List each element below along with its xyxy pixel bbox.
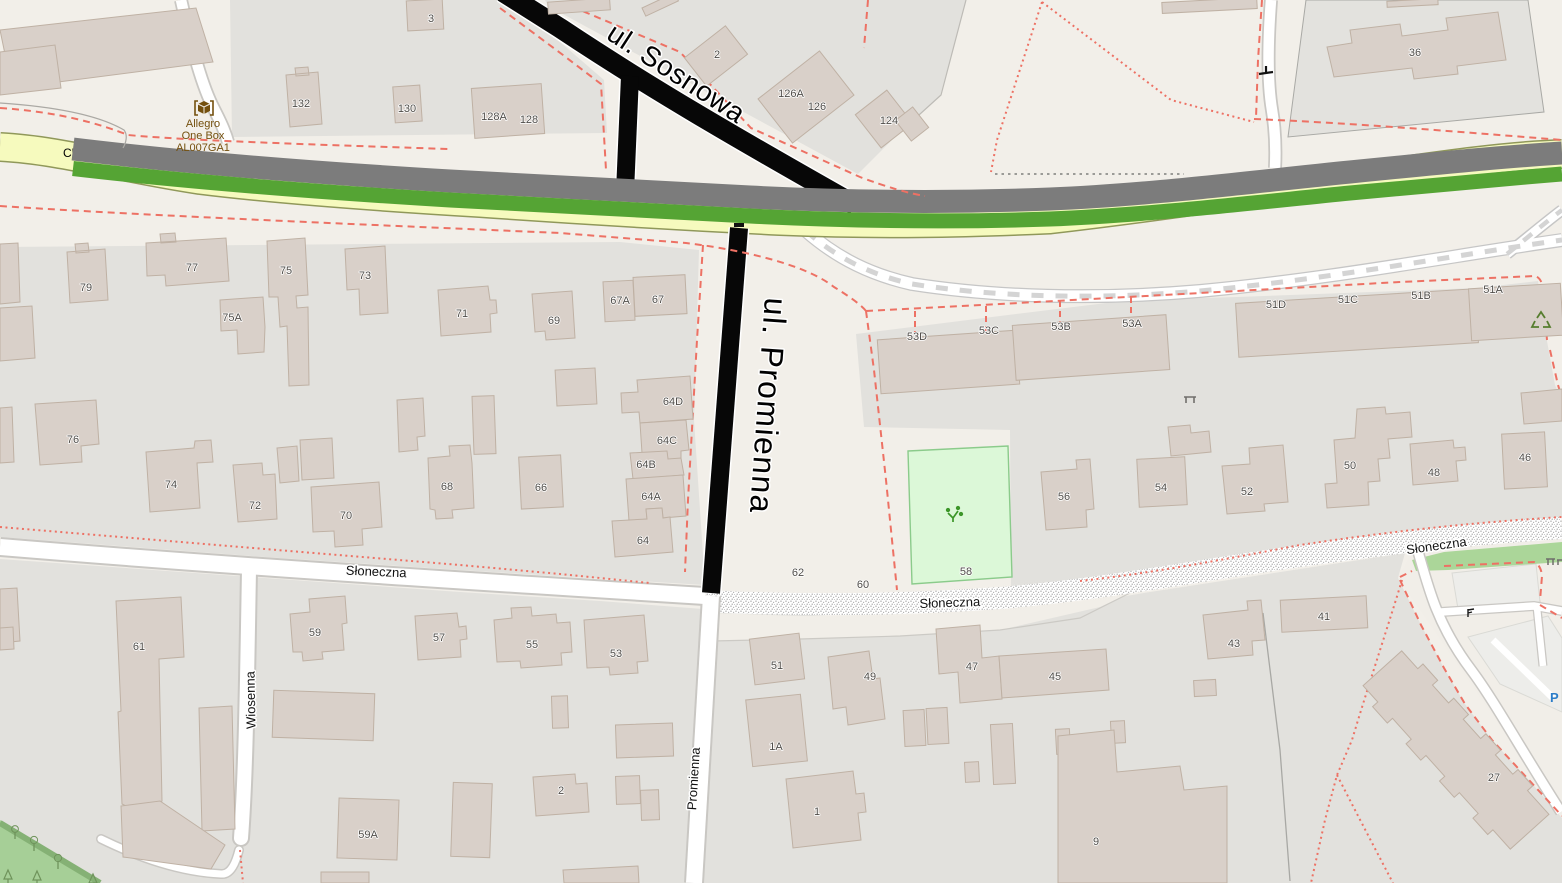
svg-text:41: 41 <box>1318 611 1330 623</box>
svg-text:76: 76 <box>67 434 79 446</box>
svg-text:Wiosenna: Wiosenna <box>242 670 258 729</box>
svg-text:66: 66 <box>535 482 547 494</box>
svg-text:58: 58 <box>960 566 972 578</box>
svg-text:77: 77 <box>186 262 198 274</box>
svg-text:75A: 75A <box>222 312 242 324</box>
svg-text:57: 57 <box>433 632 445 644</box>
svg-text:59A: 59A <box>358 829 378 841</box>
svg-text:3: 3 <box>428 13 434 25</box>
svg-text:67A: 67A <box>610 295 630 307</box>
svg-text:Słoneczna: Słoneczna <box>919 594 981 611</box>
svg-text:50: 50 <box>1344 460 1356 472</box>
svg-text:74: 74 <box>165 479 177 491</box>
svg-text:One Box: One Box <box>182 130 225 142</box>
svg-text:Allegro: Allegro <box>186 118 220 130</box>
svg-text:79: 79 <box>80 282 92 294</box>
svg-text:60: 60 <box>857 579 869 591</box>
svg-text:2: 2 <box>714 49 720 61</box>
svg-text:52: 52 <box>1241 486 1253 498</box>
svg-text:68: 68 <box>441 481 453 493</box>
svg-text:47: 47 <box>966 661 978 673</box>
svg-text:64A: 64A <box>641 491 661 503</box>
svg-text:64: 64 <box>637 535 649 547</box>
svg-text:AL007GA1: AL007GA1 <box>176 142 230 154</box>
svg-text:75: 75 <box>280 265 292 277</box>
svg-text:64C: 64C <box>657 435 677 447</box>
svg-text:Słoneczna: Słoneczna <box>346 563 408 581</box>
svg-text:46: 46 <box>1519 452 1531 464</box>
svg-text:51A: 51A <box>1483 284 1503 296</box>
svg-text:70: 70 <box>340 510 352 522</box>
svg-text:67: 67 <box>652 294 664 306</box>
svg-text:53A: 53A <box>1122 318 1142 330</box>
svg-text:1A: 1A <box>769 741 783 753</box>
svg-text:130: 130 <box>398 103 416 115</box>
svg-text:48: 48 <box>1428 467 1440 479</box>
svg-text:51: 51 <box>771 660 783 672</box>
svg-text:64D: 64D <box>663 396 683 408</box>
svg-text:73: 73 <box>359 270 371 282</box>
svg-text:128: 128 <box>520 114 538 126</box>
svg-text:55: 55 <box>526 639 538 651</box>
svg-text:72: 72 <box>249 500 261 512</box>
svg-text:53D: 53D <box>907 331 927 343</box>
svg-text:126: 126 <box>808 101 826 113</box>
svg-text:53C: 53C <box>979 325 999 337</box>
svg-text:51B: 51B <box>1411 290 1431 302</box>
svg-text:56: 56 <box>1058 491 1070 503</box>
svg-text:128A: 128A <box>481 111 507 123</box>
svg-text:126A: 126A <box>778 88 804 100</box>
svg-text:36: 36 <box>1409 47 1421 59</box>
svg-text:51C: 51C <box>1338 294 1358 306</box>
svg-text:132: 132 <box>292 98 310 110</box>
svg-text:64B: 64B <box>636 459 656 471</box>
svg-text:124: 124 <box>880 115 898 127</box>
svg-text:51D: 51D <box>1266 299 1286 311</box>
svg-text:P: P <box>1550 690 1559 705</box>
svg-text:9: 9 <box>1093 836 1099 848</box>
svg-text:53B: 53B <box>1051 321 1071 333</box>
svg-text:61: 61 <box>133 641 145 653</box>
svg-text:49: 49 <box>864 671 876 683</box>
svg-text:27: 27 <box>1488 772 1500 784</box>
svg-text:59: 59 <box>309 627 321 639</box>
svg-text:53: 53 <box>610 648 622 660</box>
svg-text:62: 62 <box>792 567 804 579</box>
svg-text:43: 43 <box>1228 638 1240 650</box>
svg-text:71: 71 <box>456 308 468 320</box>
svg-text:54: 54 <box>1155 482 1167 494</box>
svg-text:1: 1 <box>814 806 820 818</box>
svg-text:45: 45 <box>1049 671 1061 683</box>
svg-text:69: 69 <box>548 315 560 327</box>
svg-text:2: 2 <box>558 785 564 797</box>
